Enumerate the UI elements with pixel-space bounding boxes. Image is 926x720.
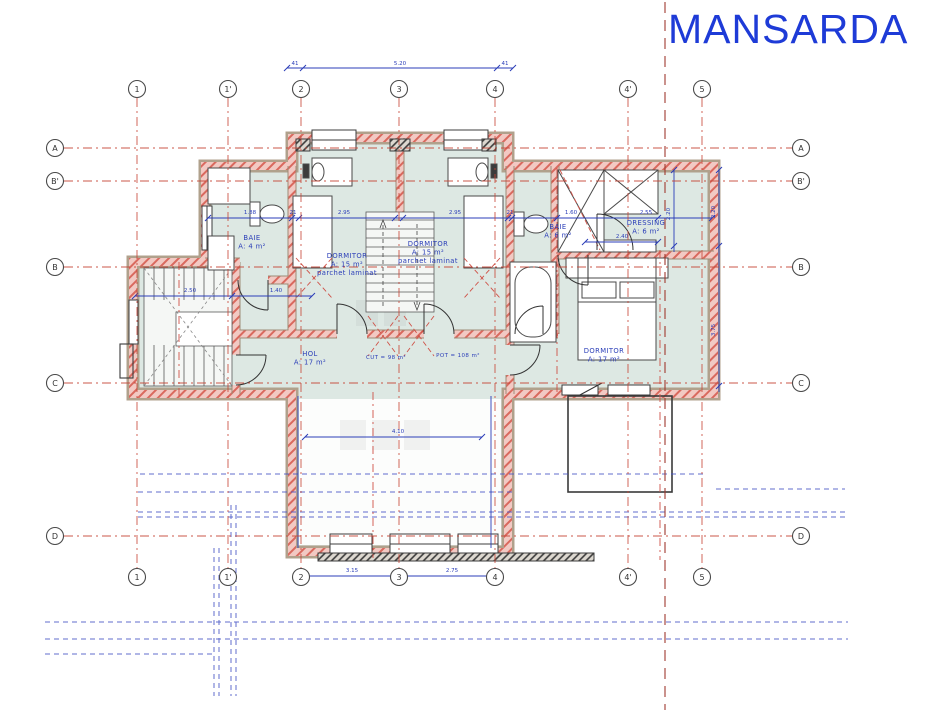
room-label-dormitor-stanga: DORMITOR bbox=[327, 252, 368, 260]
grid-bubble-label: C bbox=[798, 379, 804, 388]
grid-bubble-label: 1 bbox=[134, 573, 139, 582]
dimension-label: 2.95 bbox=[338, 210, 351, 216]
grid-bubble-label: B bbox=[798, 263, 804, 272]
terrace-strip bbox=[318, 553, 594, 561]
dimension-label: 5.20 bbox=[394, 61, 407, 67]
pillow-2 bbox=[620, 282, 654, 298]
dimension-label: 4.10 bbox=[392, 429, 405, 435]
left-staircase bbox=[144, 268, 232, 386]
dimension-label: 3.75 bbox=[711, 323, 717, 336]
room-label-baie-mica: BAIE bbox=[243, 234, 260, 242]
grid-bubble-label: 1 bbox=[134, 85, 139, 94]
dimension-label: 2.20 bbox=[711, 205, 717, 218]
grid-bubble-label: B' bbox=[797, 177, 805, 186]
stair-landing bbox=[176, 312, 232, 346]
room-label-dressing: A: 6 m² bbox=[632, 228, 660, 236]
grid-bubble-label: 2 bbox=[298, 573, 303, 582]
dimension-label: 2.55 bbox=[640, 210, 653, 216]
sink-cabinet bbox=[208, 236, 234, 270]
room-label-dormitor-matrimonial: DORMITOR bbox=[584, 347, 625, 355]
room-label-dormitor-mijloc: A: 15 m² bbox=[412, 249, 444, 257]
toilet-tank-2 bbox=[514, 212, 524, 236]
shower bbox=[208, 168, 250, 204]
floor-plan-page: 111'1'2233444'4'55AAB'B'BBCCDD 415.20413… bbox=[0, 0, 926, 720]
grid-bubble-label: A bbox=[798, 144, 804, 153]
bathtub-inner bbox=[515, 267, 551, 337]
dimension-label: 21 bbox=[507, 210, 514, 216]
grid-bubble-label: 1' bbox=[224, 573, 231, 582]
dimension-label: 3.15 bbox=[346, 568, 359, 574]
grid-bubble-label: B' bbox=[51, 177, 59, 186]
terrace-right bbox=[568, 396, 672, 492]
dimension-label: 1.60 bbox=[565, 210, 578, 216]
dimension-label: 41 bbox=[292, 61, 299, 67]
chair-right bbox=[476, 163, 488, 181]
pillow-1 bbox=[582, 282, 616, 298]
grid-bubble-label: 4 bbox=[492, 573, 497, 582]
chimney-hatch-3 bbox=[482, 139, 496, 151]
grid-bubble-label: 4' bbox=[624, 573, 631, 582]
grid-bubble-label: 2 bbox=[298, 85, 303, 94]
dimension-label: 1.88 bbox=[244, 210, 257, 216]
dimension-label: 2.40 bbox=[616, 234, 629, 240]
page-title: MANSARDA bbox=[668, 6, 918, 53]
headboard-shelf bbox=[566, 258, 668, 278]
grid-bubble-label: 3 bbox=[396, 85, 401, 94]
window-east-1 bbox=[562, 385, 598, 395]
balcony-floor bbox=[299, 399, 501, 545]
dimension-label: 2.75 bbox=[446, 568, 459, 574]
grid-bubble-label: B bbox=[52, 263, 58, 272]
chimney-hatch-1 bbox=[296, 139, 310, 151]
room-label-dormitor-stanga: A: 15 m² bbox=[331, 261, 363, 269]
room-label-dormitor-stanga: parchet laminat bbox=[317, 269, 377, 277]
grid-bubble-label: 5 bbox=[699, 573, 704, 582]
room-label-baie-mica: A: 4 m² bbox=[238, 243, 266, 251]
room-label-baie-mare: BAIE bbox=[549, 223, 566, 231]
grid-bubble-label: 3 bbox=[396, 573, 401, 582]
dimension-label: 2.95 bbox=[449, 210, 462, 216]
dimension-label: 1.40 bbox=[270, 288, 283, 294]
room-label-dormitor-matrimonial: A: 17 m² bbox=[588, 356, 620, 364]
grid-bubble-label: 5 bbox=[699, 85, 704, 94]
grid-bubble-label: D bbox=[52, 532, 58, 541]
room-label-baie-mare: A: 6 m² bbox=[544, 232, 572, 240]
room-label-indicator-pot: POT = 108 m² bbox=[436, 352, 480, 359]
dimension-label: 41 bbox=[502, 61, 509, 67]
toilet-bowl-1 bbox=[260, 205, 284, 223]
chair-left bbox=[312, 163, 324, 181]
dimension-label: 2.20 bbox=[666, 207, 672, 220]
dimension-label: 21 bbox=[290, 210, 297, 216]
wardrobe-right bbox=[464, 196, 503, 268]
window-east-2 bbox=[608, 385, 650, 395]
grid-bubble-label: D bbox=[798, 532, 804, 541]
grid-bubble-label: 1' bbox=[224, 85, 231, 94]
grid-bubble-label: C bbox=[52, 379, 58, 388]
room-label-indicator-cut: CUT = 98 m² bbox=[366, 354, 406, 361]
grid-bubble-label: A bbox=[52, 144, 58, 153]
room-label-hol: HOL bbox=[302, 350, 317, 358]
chimney-hatch-2 bbox=[390, 139, 410, 151]
room-label-dressing: DRESSING bbox=[627, 219, 665, 227]
room-label-dormitor-mijloc: DORMITOR bbox=[408, 240, 449, 248]
grid-bubble-label: 4' bbox=[624, 85, 631, 94]
dimension-label: 2.50 bbox=[184, 288, 197, 294]
room-label-hol: A: 17 m² bbox=[294, 359, 326, 367]
grid-bubble-label: 4 bbox=[492, 85, 497, 94]
room-label-dormitor-mijloc: parchet laminat bbox=[398, 257, 458, 265]
floor-plan-drawing: 111'1'2233444'4'55AAB'B'BBCCDD 415.20413… bbox=[0, 0, 926, 720]
